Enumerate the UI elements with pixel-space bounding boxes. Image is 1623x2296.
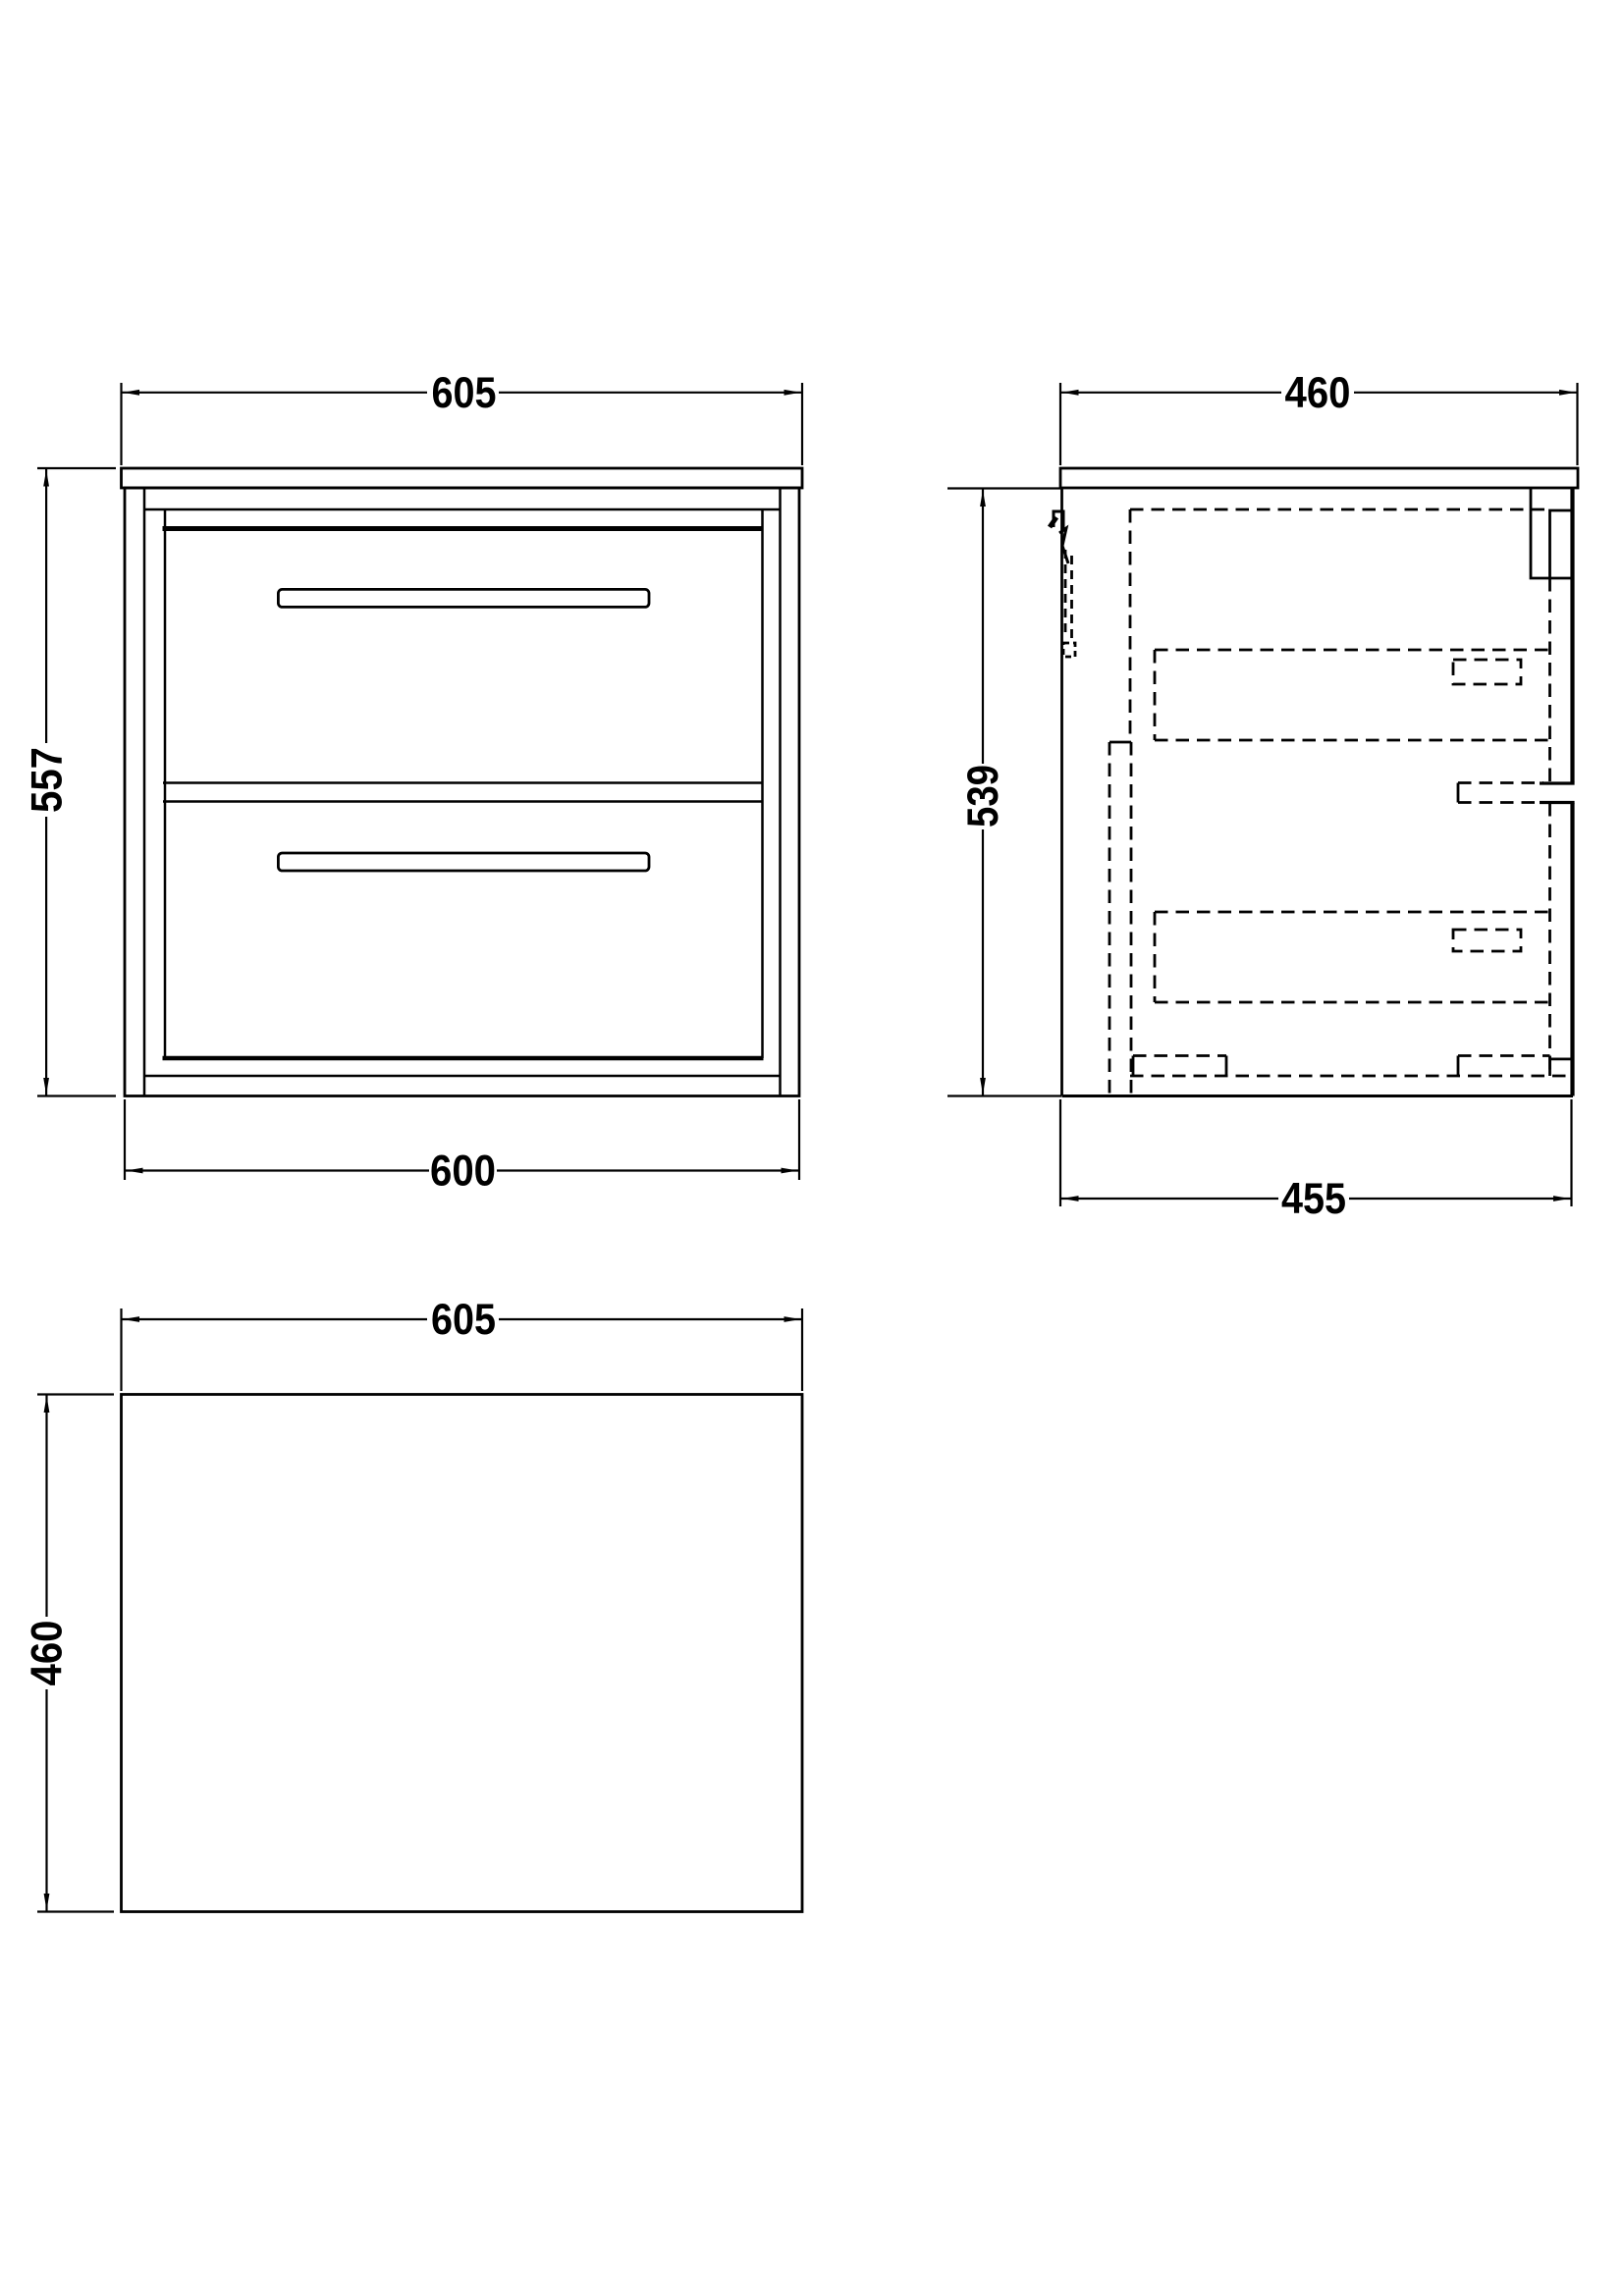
svg-text:539: 539 (959, 765, 1007, 828)
svg-text:605: 605 (431, 1296, 496, 1344)
svg-text:605: 605 (432, 369, 497, 417)
svg-text:557: 557 (24, 747, 72, 813)
svg-text:460: 460 (24, 1621, 72, 1686)
svg-text:460: 460 (1285, 369, 1351, 417)
svg-text:600: 600 (430, 1148, 496, 1196)
svg-text:455: 455 (1281, 1175, 1346, 1223)
